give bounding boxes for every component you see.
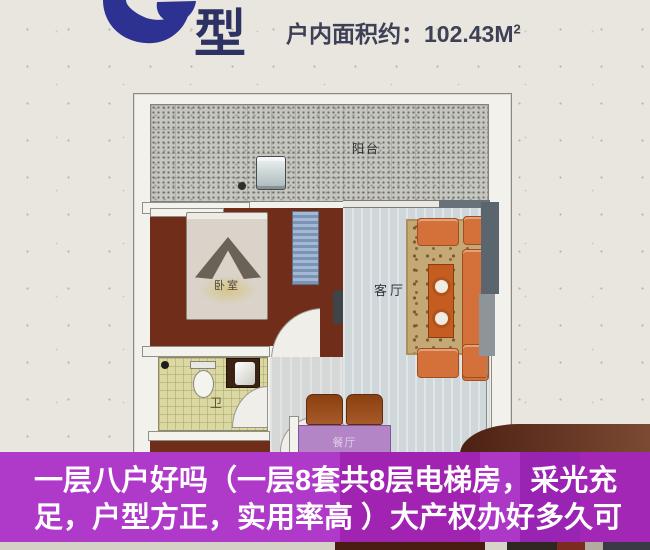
bathroom-label: 卫 <box>210 394 224 411</box>
wall-segment <box>142 346 270 357</box>
dining-chair-icon <box>346 394 383 425</box>
dining-room-label: 餐厅 <box>299 434 390 450</box>
photo-strip-block <box>585 542 603 550</box>
sink-basin <box>235 362 255 385</box>
wall-segment <box>481 202 499 294</box>
unit-area-text: 户内面积约：102.43M2 <box>286 15 521 49</box>
balcony-label: 阳台 <box>352 140 380 157</box>
brand-logo-icon <box>93 0 199 46</box>
poster-photo: 型 户内面积约：102.43M2 阳台 卧室 客厅 <box>0 0 650 550</box>
photo-strip-block <box>603 542 650 550</box>
sofa-armchair <box>417 218 459 246</box>
bed-blanket <box>195 237 261 279</box>
photo-strip-block <box>507 542 557 550</box>
wall-segment <box>320 208 343 358</box>
bedroom-label: 卧室 <box>187 277 267 293</box>
balcony-room <box>150 104 489 202</box>
caption-text: 一层八户好吗（一层8套共8层电梯房，采光充 足，户型方正，实用率高 ）大产权办好… <box>0 452 650 542</box>
photo-strip-block <box>0 542 335 550</box>
coffee-table-icon <box>428 264 454 338</box>
wardrobe-icon <box>292 211 319 285</box>
sofa-armchair <box>417 348 459 378</box>
door-panel <box>333 290 343 324</box>
wall-segment <box>148 431 270 441</box>
bathroom-fixture-icon <box>161 361 169 369</box>
photo-strip-block <box>485 542 507 550</box>
floor-drain-icon <box>238 182 246 190</box>
photo-strip <box>0 542 650 550</box>
photo-strip-block <box>557 542 585 550</box>
plate-icon <box>432 309 451 328</box>
caption-line-2: 足，户型方正，实用率高 ）大产权办好多久可 <box>34 500 620 537</box>
dining-chair-icon <box>306 394 343 425</box>
caption-line-1: 一层八户好吗（一层8套共8层电梯房，采光充 <box>34 463 620 500</box>
wall-segment <box>479 294 495 356</box>
area-value: 102.43 <box>424 21 494 47</box>
area-label: 户内面积约： <box>286 21 424 47</box>
plate-icon <box>432 277 451 296</box>
unit-type-character: 型 <box>194 0 248 67</box>
area-exponent: 2 <box>514 21 521 36</box>
sink-icon <box>226 358 260 388</box>
bed-icon: 卧室 <box>186 212 268 320</box>
photo-strip-block <box>335 542 485 550</box>
toilet-icon <box>193 370 214 398</box>
balcony-sliding-door <box>343 200 439 208</box>
washing-machine-icon <box>256 156 286 190</box>
caption-banner: 一层八户好吗（一层8套共8层电梯房，采光充 足，户型方正，实用率高 ）大产权办好… <box>0 452 650 542</box>
living-room-label: 客厅 <box>374 280 406 299</box>
toilet-icon <box>190 361 216 369</box>
area-unit: M <box>494 21 513 47</box>
background-photo-fragment <box>460 424 650 454</box>
